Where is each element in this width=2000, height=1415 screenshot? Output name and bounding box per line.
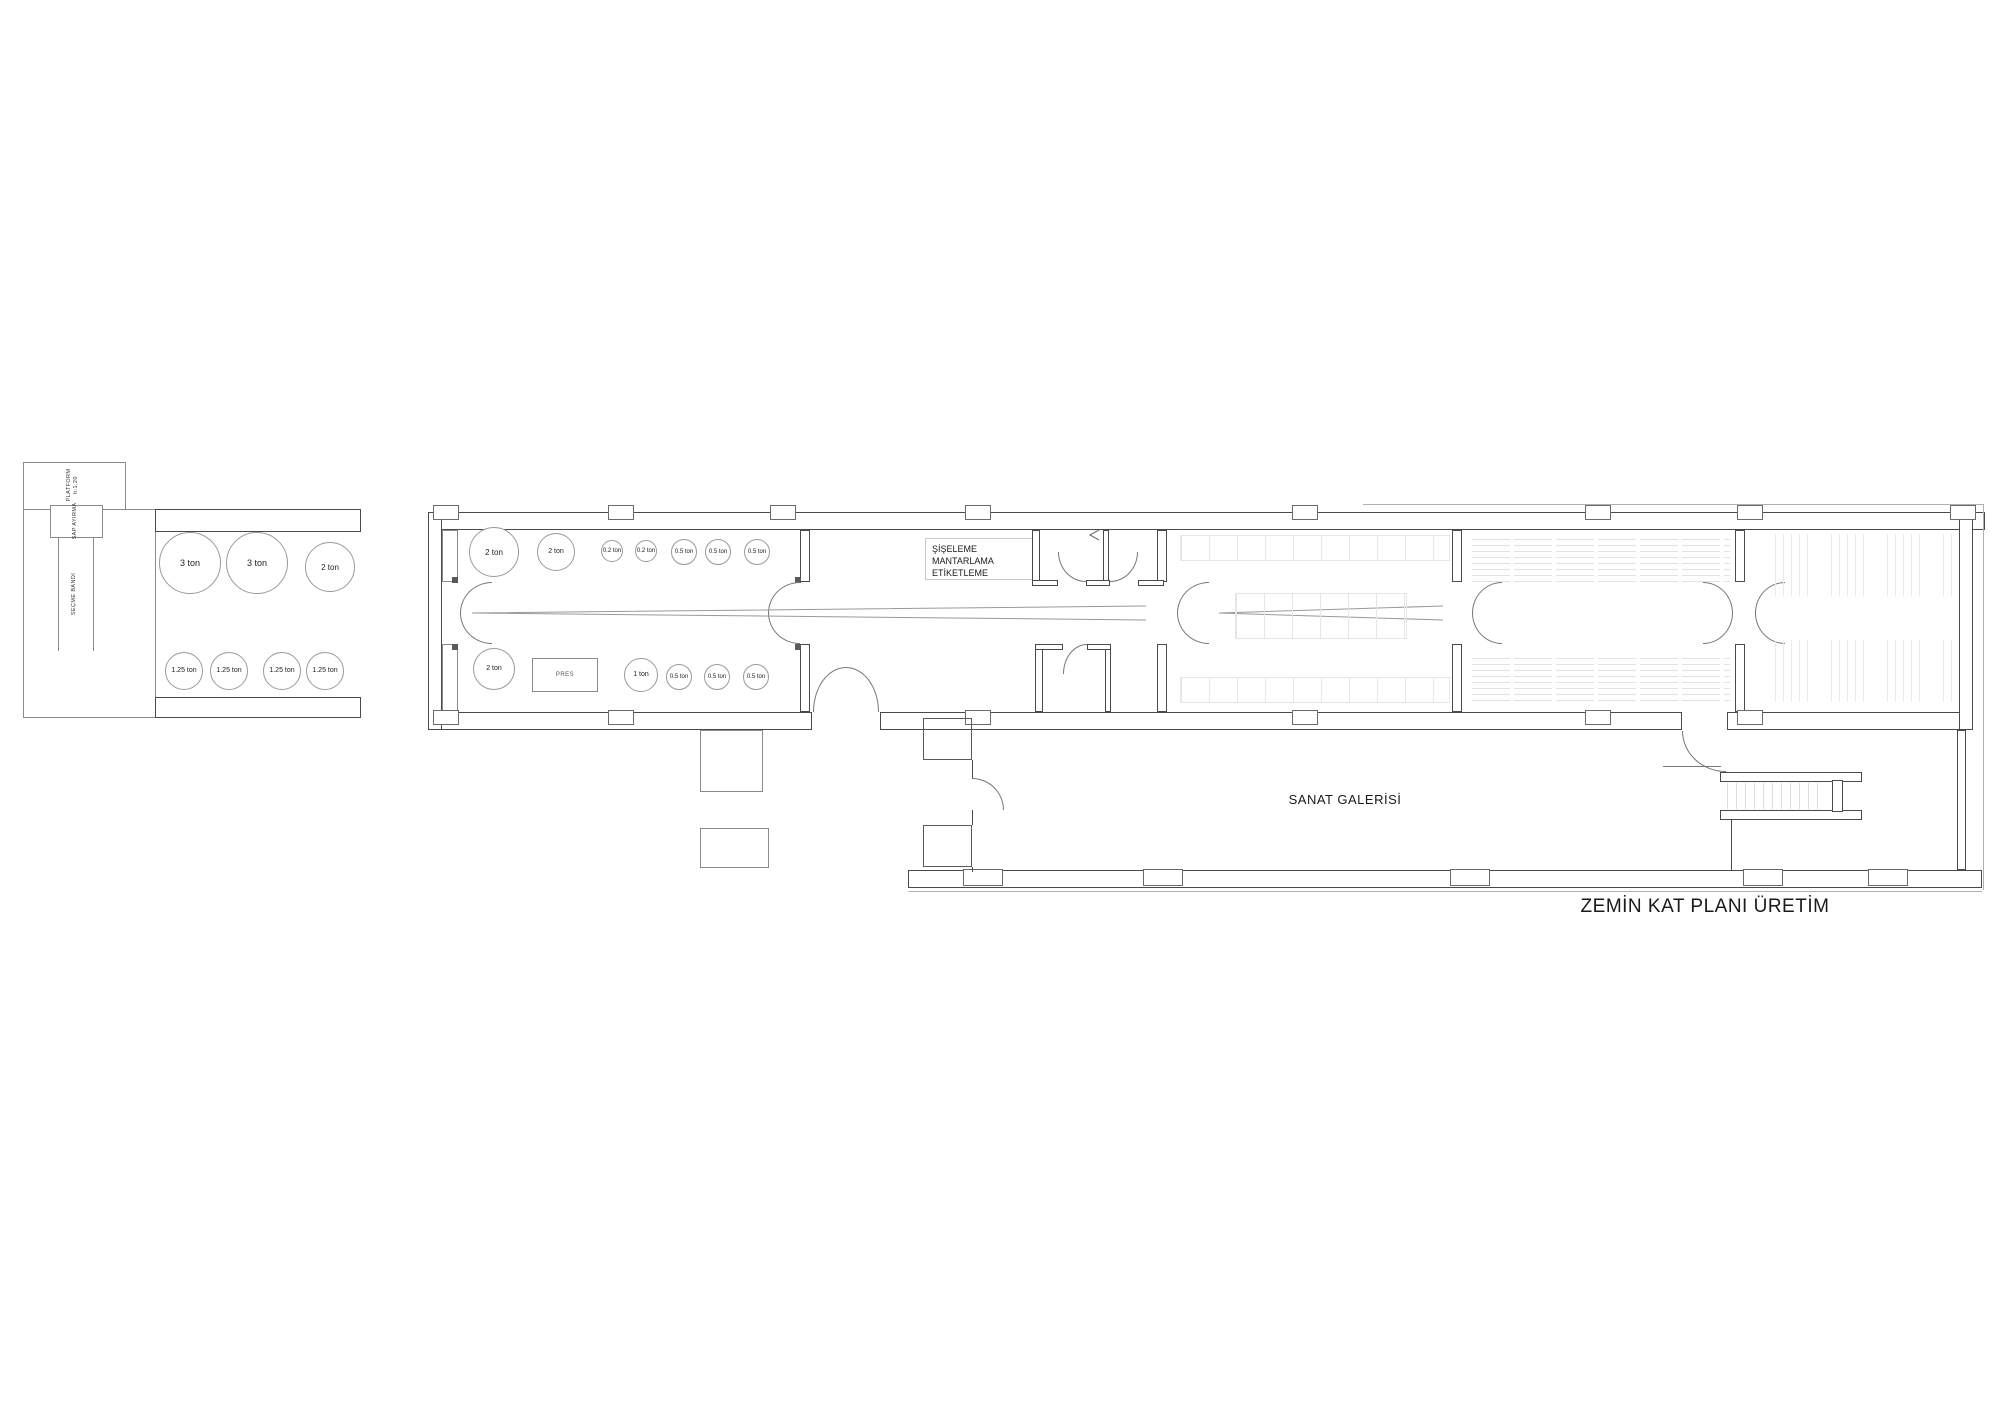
- tank: 0.5 ton: [743, 664, 769, 690]
- column-marker: [1737, 505, 1763, 520]
- barrel-racks: [1468, 655, 1730, 677]
- column-marker: [1585, 505, 1611, 520]
- gallery-label: SANAT GALERİSİ: [1245, 792, 1445, 807]
- door-jamb: [880, 712, 881, 730]
- wall-segment: [1731, 820, 1732, 870]
- column-marker: [1950, 505, 1976, 520]
- gallery-wall-left: [972, 760, 973, 778]
- tank: 0.5 ton: [666, 664, 692, 690]
- sap-ayirma-label: SAP AYIRMA: [72, 499, 80, 543]
- tank: 3 ton: [226, 532, 288, 594]
- door-arc: [1472, 582, 1502, 613]
- tank: 0.5 ton: [704, 664, 730, 690]
- tank: 0.5 ton: [744, 539, 770, 565]
- door-arc: [1703, 613, 1733, 644]
- cross-wall: [800, 530, 810, 582]
- door-opening: [1681, 711, 1728, 731]
- column-marker: [608, 505, 634, 520]
- tank: 2 ton: [469, 527, 519, 577]
- outer-boundary-line: [908, 891, 1982, 892]
- column-marker: [770, 505, 796, 520]
- door-arc: [1177, 582, 1209, 613]
- bottling-label-box: ŞİŞELEME MANTARLAMA ETİKETLEME: [925, 538, 1033, 580]
- tank: 2 ton: [305, 542, 355, 592]
- tank: 0.5 ton: [705, 539, 731, 565]
- door-arc: [1058, 552, 1086, 582]
- door-opening: [811, 711, 881, 731]
- tank: 1.25 ton: [165, 652, 203, 690]
- tank: 1.25 ton: [306, 652, 344, 690]
- vestibule: [700, 828, 769, 868]
- door-hinge-block: [452, 644, 458, 650]
- interior-wall: [1087, 644, 1111, 650]
- interior-wall: [1032, 580, 1058, 586]
- tank: 0.2 ton: [635, 540, 657, 562]
- fermentation-wall-top: [155, 509, 361, 532]
- building-wall-right: [1959, 512, 1973, 730]
- tank: 2 ton: [473, 648, 515, 690]
- bottling-line3: ETİKETLEME: [932, 567, 1032, 579]
- alcove: [923, 825, 972, 867]
- tank: 3 ton: [159, 532, 221, 594]
- equipment-row: [1180, 677, 1450, 703]
- door-arc: [1703, 582, 1733, 613]
- press-machine: PRES: [532, 658, 598, 692]
- door-hinge-block: [795, 644, 801, 650]
- stair-treads: [1727, 783, 1825, 809]
- column-marker: [1743, 869, 1783, 886]
- wall-stub: [442, 644, 458, 712]
- column-marker: [1737, 710, 1763, 725]
- vestibule: [700, 730, 763, 792]
- conveyor-arrow: [468, 602, 1148, 624]
- cross-wall: [1452, 644, 1462, 712]
- tank: 1 ton: [624, 658, 658, 692]
- column-marker: [608, 710, 634, 725]
- column-marker: [1292, 505, 1318, 520]
- storage-racks: [1775, 534, 1953, 596]
- interior-wall: [1103, 530, 1109, 582]
- column-marker: [1868, 869, 1908, 886]
- storage-racks: [1775, 640, 1953, 702]
- door-arc: [1110, 552, 1138, 582]
- barrel-racks: [1468, 560, 1730, 582]
- floor-plan: PLATFORM h:1.20 SAP AYIRMA SEÇME BANDI 3…: [0, 0, 2000, 1415]
- column-marker: [963, 869, 1003, 886]
- column-marker: [1143, 869, 1183, 886]
- column-marker: [1585, 710, 1611, 725]
- door-arc: [1177, 613, 1209, 644]
- interior-wall: [1138, 580, 1164, 586]
- building-wall-left: [428, 512, 442, 730]
- interior-wall: [1105, 644, 1111, 712]
- door-leaf: [1663, 766, 1721, 767]
- building-wall-bottom: [428, 712, 1965, 730]
- column-marker: [965, 505, 991, 520]
- tank: 2 ton: [537, 533, 575, 571]
- door-arc: [1472, 613, 1502, 644]
- column-marker: [433, 710, 459, 725]
- cross-wall: [1157, 530, 1167, 582]
- tank: 1.25 ton: [210, 652, 248, 690]
- cross-wall: [1735, 644, 1745, 712]
- door-jamb: [1727, 712, 1728, 730]
- equipment-row: [1235, 593, 1407, 639]
- interior-wall: [1086, 580, 1110, 586]
- cross-wall: [1735, 530, 1745, 582]
- barrel-racks: [1468, 536, 1730, 558]
- tank: 0.2 ton: [601, 540, 623, 562]
- interior-wall: [1035, 644, 1063, 650]
- outer-boundary-line: [1363, 504, 1984, 505]
- page-title: ZEMİN KAT PLANI ÜRETİM: [1580, 896, 1830, 918]
- outer-boundary-line: [1983, 504, 1984, 890]
- door-arc: [972, 778, 1004, 810]
- tank: 1.25 ton: [263, 652, 301, 690]
- door-jamb: [811, 712, 812, 730]
- tank: 0.5 ton: [671, 539, 697, 565]
- gallery-wall-right: [1957, 730, 1966, 870]
- column-marker: [1450, 869, 1490, 886]
- gallery-wall-bottom: [908, 870, 1982, 888]
- bottling-line2: MANTARLAMA: [932, 555, 1032, 567]
- alcove: [923, 718, 972, 760]
- gallery-wall-left: [972, 867, 973, 872]
- secme-bandi-label: SEÇME BANDI: [71, 564, 79, 624]
- wall-stub: [442, 530, 458, 582]
- interior-wall: [1035, 644, 1043, 712]
- door-arc: [813, 667, 846, 712]
- door-arc: [1063, 644, 1087, 674]
- chevron-symbol: [1086, 528, 1102, 542]
- barrel-racks: [1468, 679, 1730, 701]
- interior-wall: [1032, 530, 1040, 582]
- door-hinge-block: [452, 577, 458, 583]
- stair-landing-wall: [1832, 780, 1843, 812]
- bottling-line1: ŞİŞELEME: [932, 543, 1032, 555]
- column-marker: [433, 505, 459, 520]
- door-jamb: [1681, 712, 1682, 730]
- door-arc: [846, 667, 879, 712]
- cross-wall: [800, 644, 810, 712]
- gallery-wall-left: [972, 810, 973, 825]
- cross-wall: [1157, 644, 1167, 712]
- column-marker: [1292, 710, 1318, 725]
- cross-wall: [1452, 530, 1462, 582]
- fermentation-wall-bottom: [155, 697, 361, 718]
- equipment-row: [1180, 535, 1450, 561]
